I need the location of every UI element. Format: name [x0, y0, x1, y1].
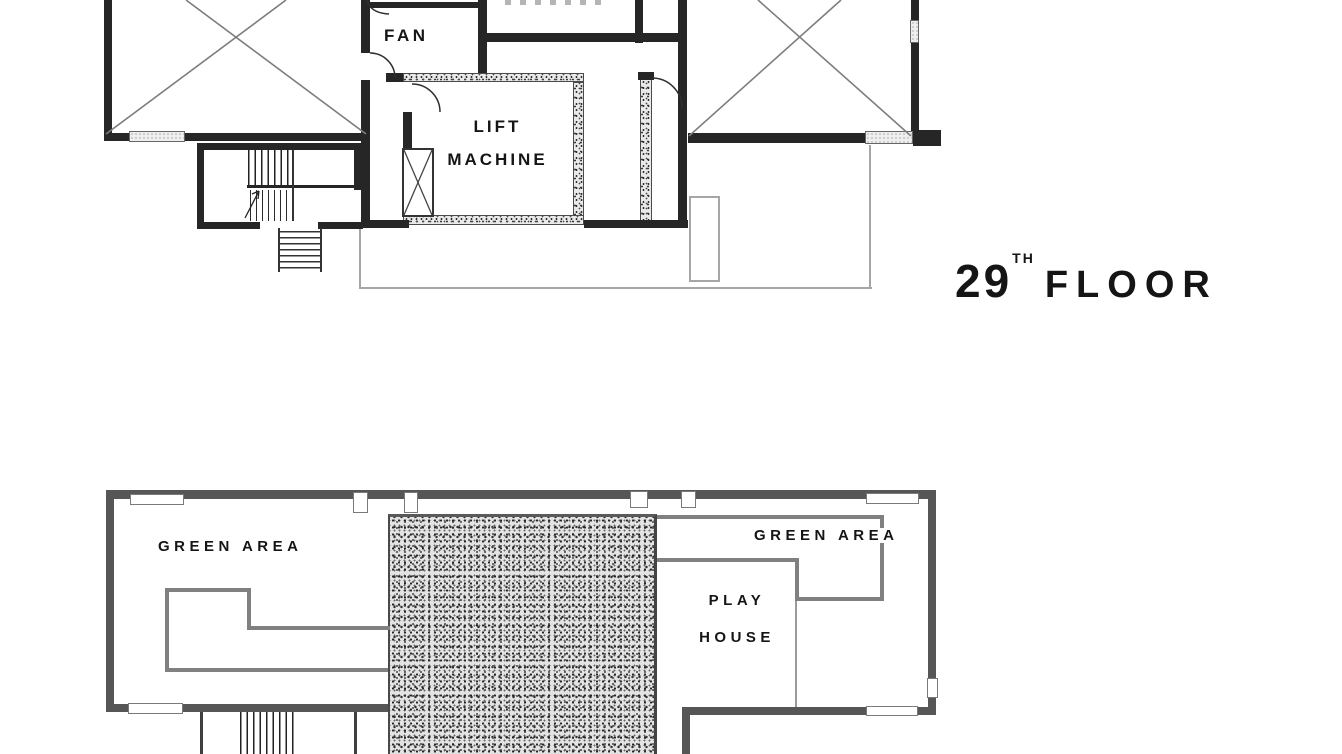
room-label-lift-machine: LIFT MACHINE: [420, 117, 575, 170]
room-label-fan: FAN: [382, 27, 431, 44]
door-swing-arc: [367, 0, 682, 112]
floor-word: FLOOR: [1045, 264, 1218, 306]
floor-plan-canvas: FAN LIFT MACHINE 29THFLOOR GREEN AREA GR…: [0, 0, 1342, 754]
room-label-play-line2: HOUSE: [697, 629, 777, 646]
room-label-lift-line2: MACHINE: [445, 150, 549, 170]
room-label-play-house: PLAY HOUSE: [667, 592, 807, 646]
floor-number-suffix: TH: [1012, 250, 1035, 266]
void-cross-left: [106, 0, 366, 134]
stair-direction-arrow: [245, 191, 259, 218]
floor-number: 29: [955, 255, 1012, 307]
floor-title: 29THFLOOR: [955, 250, 1218, 304]
area-label-green-left: GREEN AREA: [156, 539, 304, 554]
area-label-green-right: GREEN AREA: [752, 528, 900, 543]
room-label-play-line1: PLAY: [707, 592, 768, 609]
room-label-lift-line1: LIFT: [472, 117, 524, 137]
void-cross-right: [689, 0, 911, 136]
